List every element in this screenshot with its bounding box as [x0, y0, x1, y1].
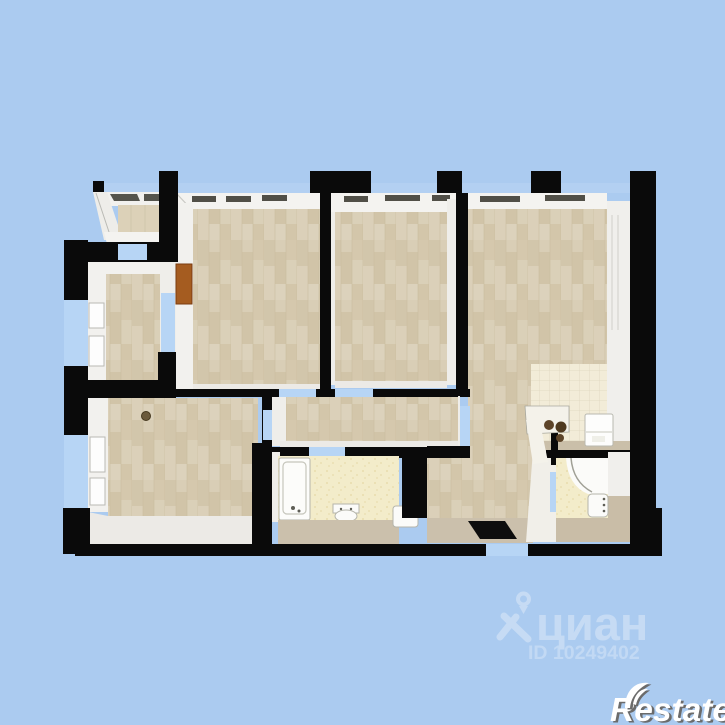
svg-text:ID 10249402: ID 10249402 [528, 642, 640, 664]
